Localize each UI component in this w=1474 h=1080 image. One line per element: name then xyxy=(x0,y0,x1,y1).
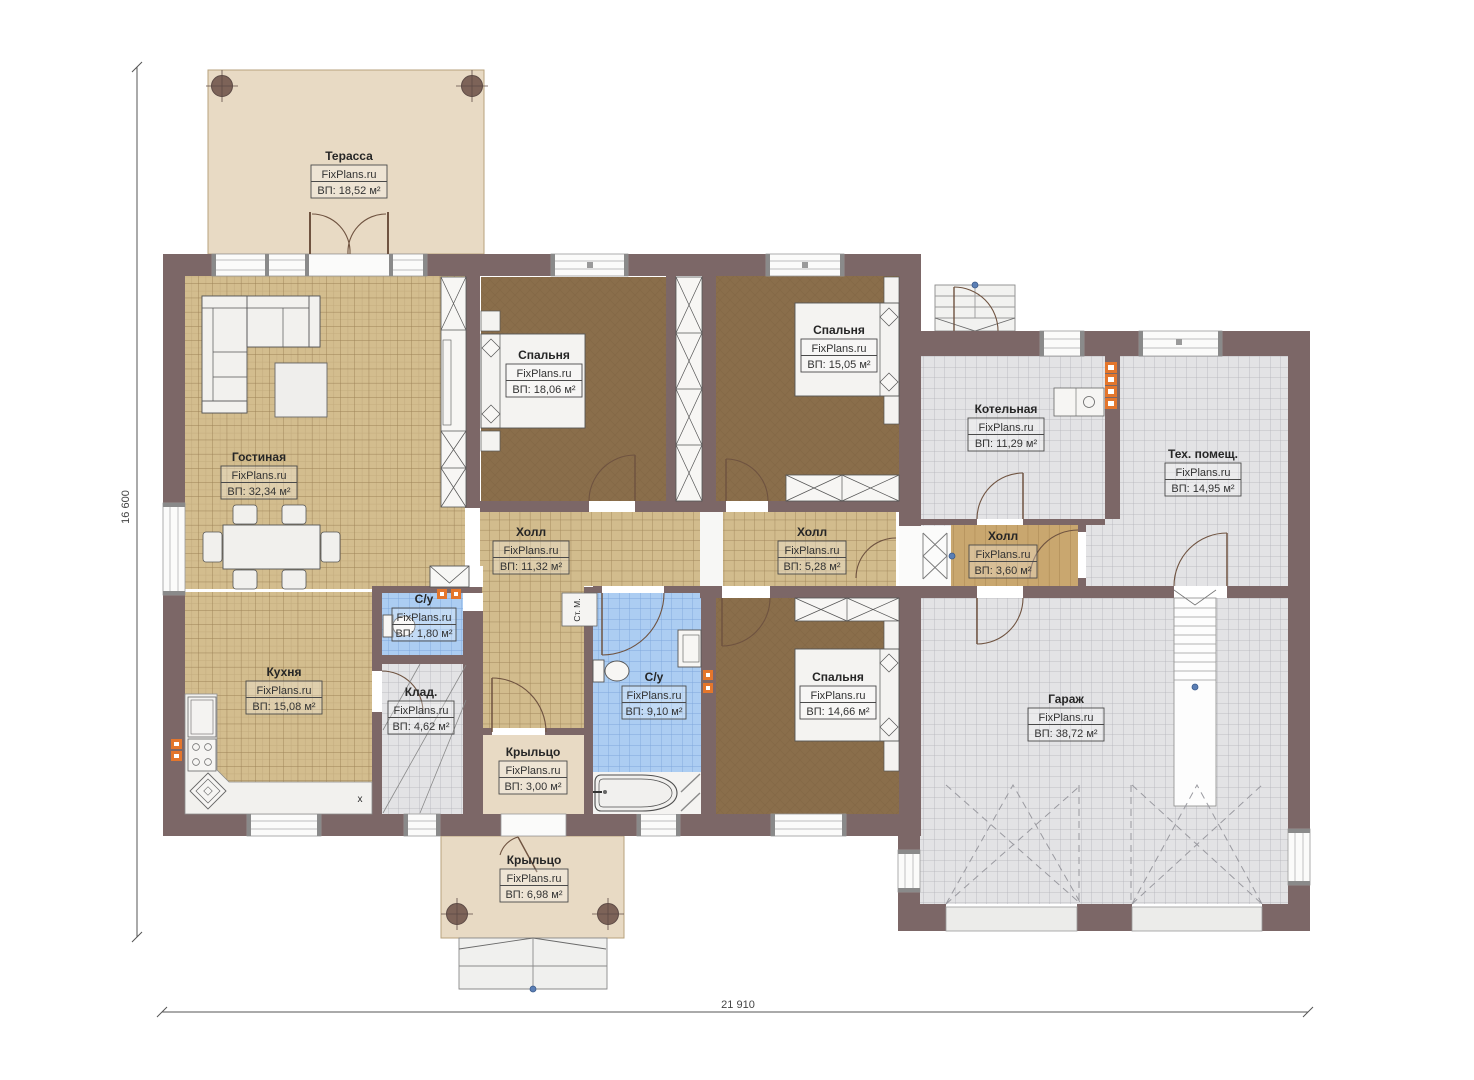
svg-text:Клад.: Клад. xyxy=(405,685,438,699)
svg-text:16 600: 16 600 xyxy=(120,490,132,524)
svg-text:ВП: 14,66 м²: ВП: 14,66 м² xyxy=(806,706,870,718)
svg-text:Холл: Холл xyxy=(988,529,1018,543)
svg-text:ВП: 4,62 м²: ВП: 4,62 м² xyxy=(392,721,449,733)
svg-text:ВП: 3,60 м²: ВП: 3,60 м² xyxy=(974,565,1031,577)
svg-text:FixPlans.ru: FixPlans.ru xyxy=(393,705,448,717)
svg-text:Гараж: Гараж xyxy=(1048,692,1084,706)
svg-text:FixPlans.ru: FixPlans.ru xyxy=(396,612,451,624)
svg-text:FixPlans.ru: FixPlans.ru xyxy=(231,470,286,482)
svg-text:ВП: 3,00 м²: ВП: 3,00 м² xyxy=(504,781,561,793)
svg-text:Ст. М.: Ст. М. xyxy=(572,598,582,621)
svg-text:Крыльцо: Крыльцо xyxy=(507,853,562,867)
svg-text:Тех. помещ.: Тех. помещ. xyxy=(1168,447,1238,461)
svg-text:ВП: 15,08 м²: ВП: 15,08 м² xyxy=(252,701,316,713)
svg-text:Терасса: Терасса xyxy=(325,149,373,163)
svg-text:Кухня: Кухня xyxy=(266,665,301,679)
svg-text:21 910: 21 910 xyxy=(721,999,755,1011)
svg-text:FixPlans.ru: FixPlans.ru xyxy=(784,545,839,557)
svg-text:ВП: 14,95 м²: ВП: 14,95 м² xyxy=(1171,483,1235,495)
svg-text:FixPlans.ru: FixPlans.ru xyxy=(256,685,311,697)
svg-text:FixPlans.ru: FixPlans.ru xyxy=(1175,467,1230,479)
svg-text:FixPlans.ru: FixPlans.ru xyxy=(503,545,558,557)
svg-text:x: x xyxy=(358,794,363,805)
svg-text:FixPlans.ru: FixPlans.ru xyxy=(975,549,1030,561)
svg-text:FixPlans.ru: FixPlans.ru xyxy=(1038,712,1093,724)
svg-text:ВП: 9,10 м²: ВП: 9,10 м² xyxy=(625,706,682,718)
svg-text:Холл: Холл xyxy=(516,525,546,539)
svg-text:Гостиная: Гостиная xyxy=(232,450,286,464)
svg-text:FixPlans.ru: FixPlans.ru xyxy=(811,343,866,355)
svg-text:ВП: 18,52 м²: ВП: 18,52 м² xyxy=(317,185,381,197)
svg-text:ВП: 11,29 м²: ВП: 11,29 м² xyxy=(975,438,1038,450)
svg-text:ВП: 18,06 м²: ВП: 18,06 м² xyxy=(512,384,576,396)
svg-text:Спальня: Спальня xyxy=(813,323,865,337)
svg-text:Холл: Холл xyxy=(797,525,827,539)
svg-text:FixPlans.ru: FixPlans.ru xyxy=(810,690,865,702)
svg-text:ВП: 11,32 м²: ВП: 11,32 м² xyxy=(500,561,563,573)
svg-text:С/у: С/у xyxy=(415,592,434,606)
svg-text:ВП: 15,05 м²: ВП: 15,05 м² xyxy=(807,359,871,371)
svg-text:Котельная: Котельная xyxy=(975,402,1038,416)
svg-text:ВП: 38,72 м²: ВП: 38,72 м² xyxy=(1034,728,1098,740)
svg-text:ВП: 1,80 м²: ВП: 1,80 м² xyxy=(395,628,452,640)
svg-text:ВП: 32,34 м²: ВП: 32,34 м² xyxy=(227,486,291,498)
svg-text:ВП: 6,98 м²: ВП: 6,98 м² xyxy=(505,889,562,901)
svg-text:С/у: С/у xyxy=(645,670,664,684)
svg-text:FixPlans.ru: FixPlans.ru xyxy=(321,169,376,181)
svg-text:FixPlans.ru: FixPlans.ru xyxy=(505,765,560,777)
svg-text:Спальня: Спальня xyxy=(518,348,570,362)
svg-text:FixPlans.ru: FixPlans.ru xyxy=(978,422,1033,434)
svg-text:ВП: 5,28 м²: ВП: 5,28 м² xyxy=(783,561,840,573)
svg-text:Спальня: Спальня xyxy=(812,670,864,684)
svg-text:Крыльцо: Крыльцо xyxy=(506,745,561,759)
svg-text:FixPlans.ru: FixPlans.ru xyxy=(516,368,571,380)
svg-text:FixPlans.ru: FixPlans.ru xyxy=(626,690,681,702)
svg-text:FixPlans.ru: FixPlans.ru xyxy=(506,873,561,885)
